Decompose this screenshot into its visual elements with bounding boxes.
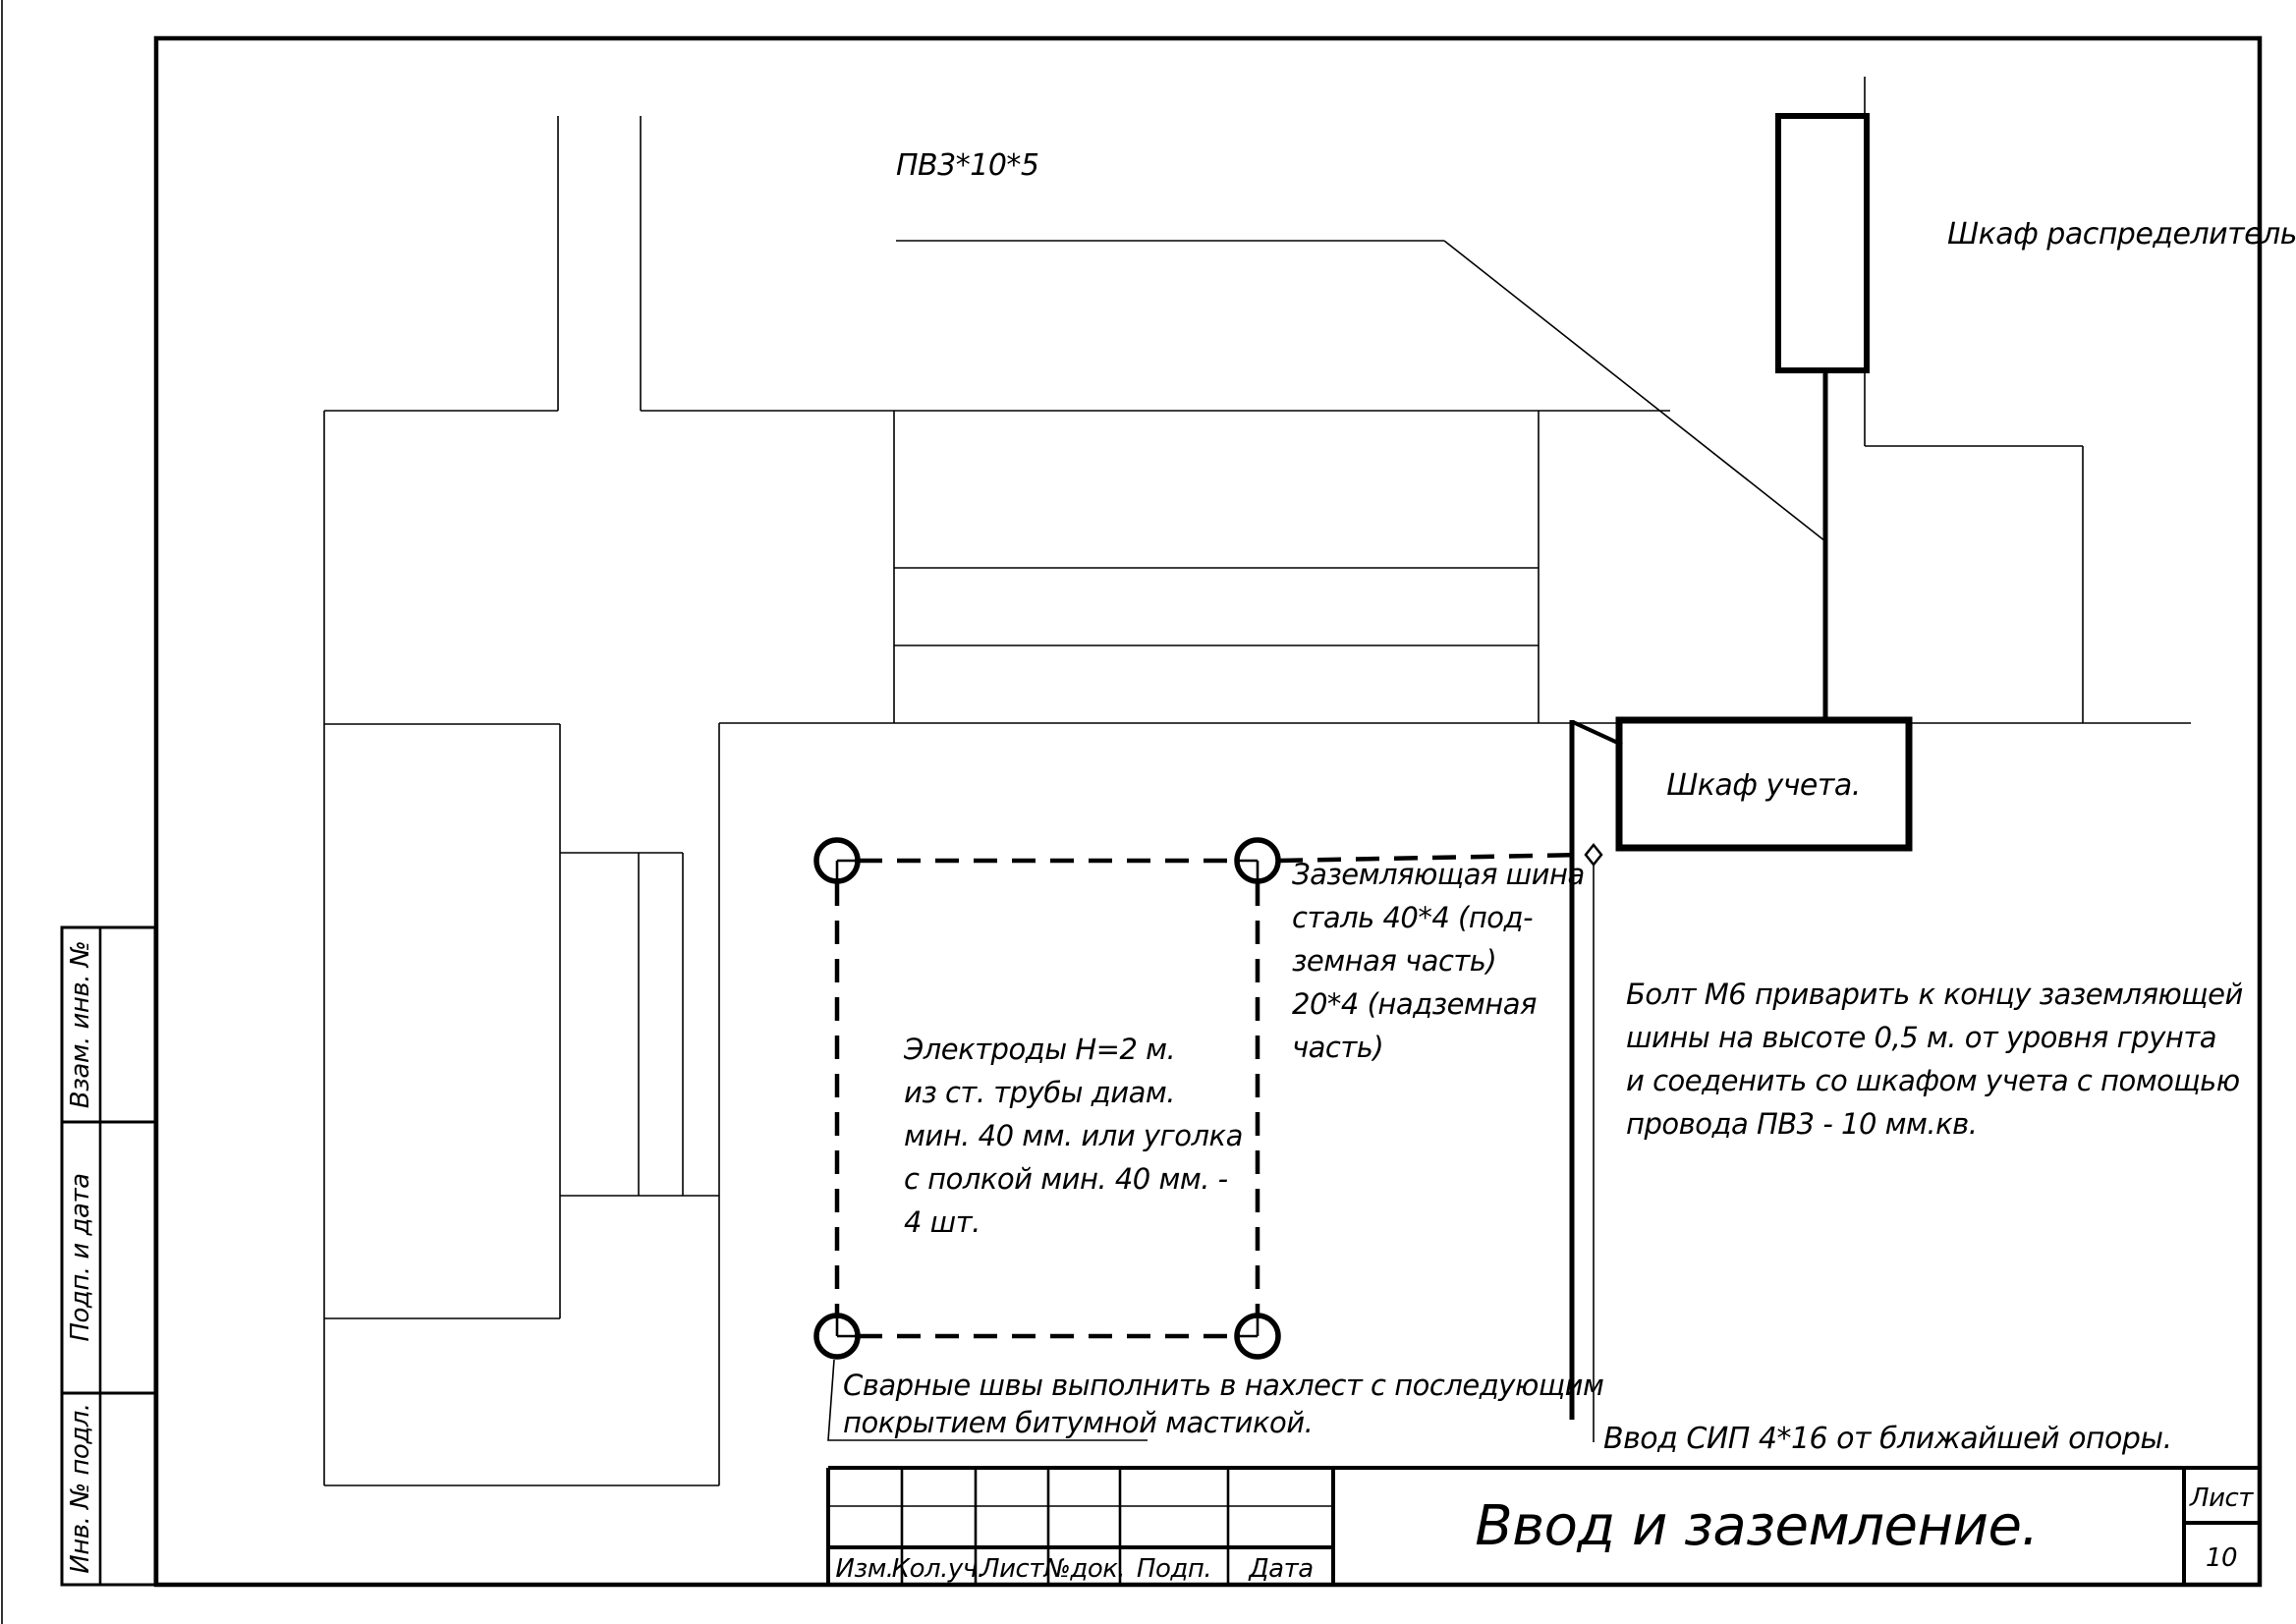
svg-text:и соеденить со шкафом учета с: и соеденить со шкафом учета с помощью: [1626, 1064, 2240, 1097]
column-header: №док.: [1042, 1554, 1125, 1584]
svg-text:сталь 40*4 (под-: сталь 40*4 (под-: [1292, 901, 1533, 934]
margin-label: Инв. № подл.: [66, 1403, 95, 1573]
sip-note: Ввод СИП 4*16 от ближайшей опоры.: [1603, 1422, 2172, 1456]
cable-diagonal-line: [1444, 241, 1825, 541]
electrodes-note: Электроды Н=2 м. из ст. трубы диам. мин.…: [903, 1033, 1243, 1239]
drawing-canvas: ПВ3*10*5 Шкаф распределительный Шкаф уче…: [0, 0, 2296, 1624]
column-header: Изм.: [835, 1554, 893, 1584]
ground-bus-note: Заземляющая шина сталь 40*4 (под- земная…: [1292, 858, 1585, 1064]
svg-text:мин. 40 мм. или уголка: мин. 40 мм. или уголка: [904, 1119, 1243, 1152]
column-header: Лист: [980, 1554, 1044, 1584]
margin-label: Подп. и дата: [66, 1173, 95, 1341]
sheet-frame: [156, 38, 2260, 1585]
sheet-number: 10: [2206, 1543, 2237, 1573]
margin-label: Взам. инв. №: [66, 941, 95, 1109]
svg-text:из ст. трубы диам.: из ст. трубы диам.: [904, 1076, 1175, 1109]
svg-text:провода ПВ3 - 10 мм.кв.: провода ПВ3 - 10 мм.кв.: [1626, 1107, 1977, 1141]
electrode-symbol: [1237, 840, 1278, 881]
electrode-symbol: [816, 1316, 858, 1357]
svg-text:часть): часть): [1292, 1031, 1383, 1064]
svg-text:20*4 (надземная: 20*4 (надземная: [1292, 987, 1537, 1021]
column-header: Подп.: [1137, 1554, 1211, 1584]
svg-text:Заземляющая шина: Заземляющая шина: [1292, 858, 1585, 891]
margin-boxes: Взам. инв. № Подп. и дата Инв. № подл.: [62, 927, 155, 1585]
svg-text:земная часть): земная часть): [1292, 944, 1496, 978]
bolt-note: Болт М6 приварить к концу заземляющей ши…: [1626, 978, 2243, 1141]
sheet-cell-label: Лист: [2189, 1484, 2254, 1513]
svg-text:Электроды Н=2 м.: Электроды Н=2 м.: [903, 1033, 1175, 1066]
electrode-symbol: [1237, 1316, 1278, 1357]
meter-cabinet-label: Шкаф учета.: [1666, 768, 1861, 803]
drawing-sheet: ПВ3*10*5 Шкаф распределительный Шкаф уче…: [0, 0, 2296, 1624]
cable-label: ПВ3*10*5: [896, 148, 1039, 183]
electrode-symbol: [816, 840, 858, 881]
distribution-cabinet: [1778, 116, 1867, 370]
column-header: Кол.уч.: [892, 1554, 985, 1584]
leader-arrow-diamond: [1586, 845, 1601, 865]
column-header: Дата: [1248, 1554, 1313, 1584]
svg-text:с полкой мин. 40 мм. -: с полкой мин. 40 мм. -: [904, 1162, 1228, 1196]
svg-text:шины на высоте 0,5 м. от уровн: шины на высоте 0,5 м. от уровня грунта: [1626, 1021, 2216, 1054]
ground-bus-bend: [1573, 722, 1622, 745]
distribution-cabinet-label: Шкаф распределительный: [1947, 217, 2296, 252]
svg-text:покрытием битумной мастикой.: покрытием битумной мастикой.: [843, 1406, 1313, 1439]
title-block: Изм. Кол.уч. Лист №док. Подп. Дата Ввод …: [828, 1468, 2260, 1585]
drawing-title: Ввод и заземление.: [1475, 1494, 2038, 1558]
svg-text:Сварные швы выполнить в нахлес: Сварные швы выполнить в нахлест с послед…: [843, 1369, 1603, 1402]
weld-note: Сварные швы выполнить в нахлест с послед…: [843, 1369, 1603, 1439]
svg-text:Болт М6 приварить к концу зазе: Болт М6 приварить к концу заземляющей: [1626, 978, 2243, 1011]
svg-text:4 шт.: 4 шт.: [904, 1205, 980, 1239]
